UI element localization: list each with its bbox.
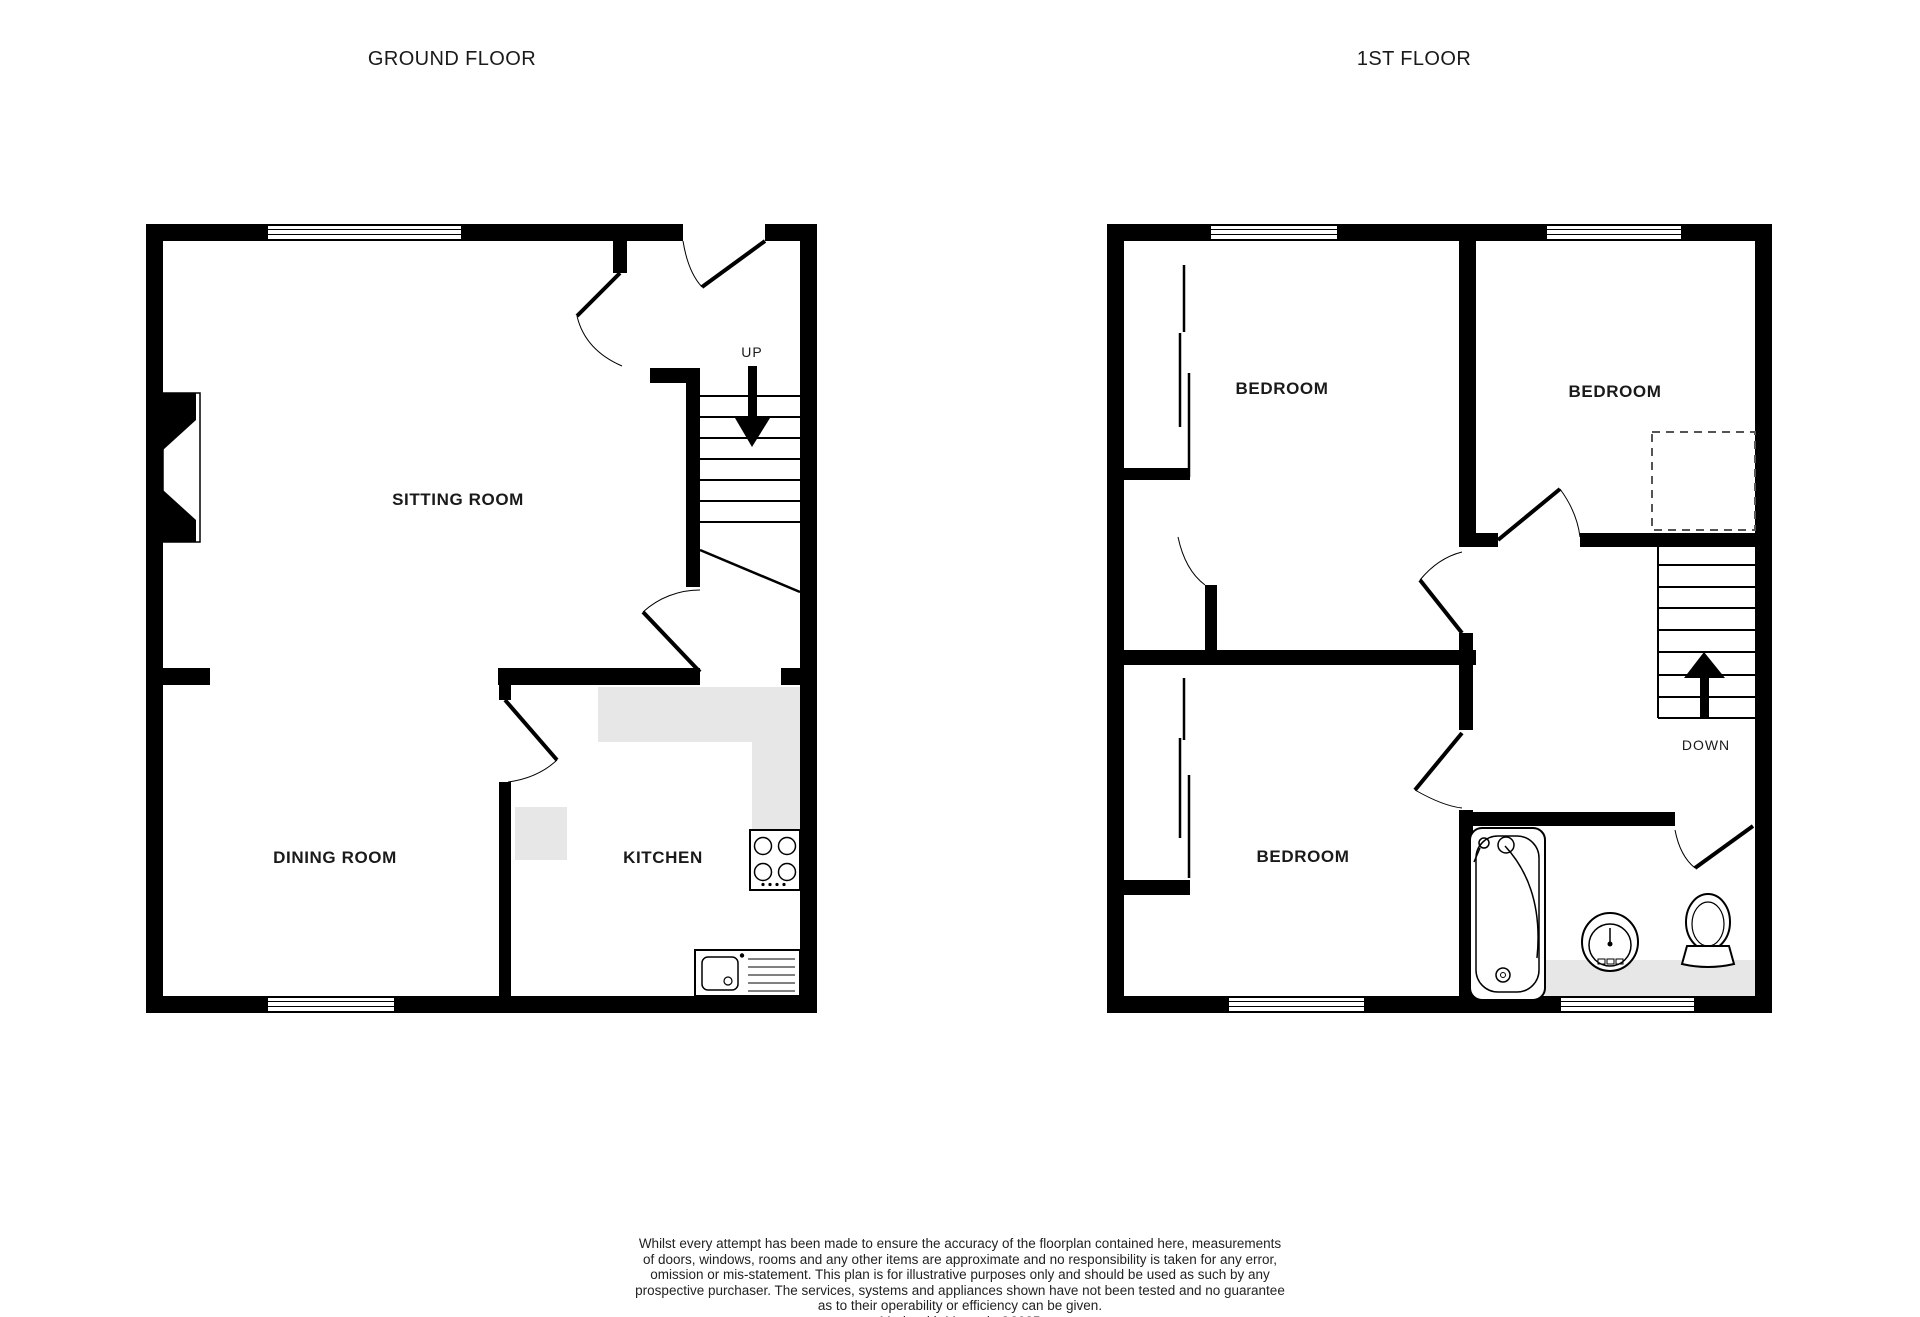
first-floor-title: 1ST FLOOR — [1357, 48, 1471, 70]
disclaimer-line: of doors, windows, rooms and any other i… — [0, 1252, 1920, 1268]
basin-icon — [1582, 913, 1638, 971]
first-floor-plan — [1107, 224, 1772, 1013]
first-window-bottom-left — [1228, 997, 1365, 1012]
stairs-up-label: UP — [741, 344, 762, 360]
bedroom3-label: BEDROOM — [1257, 847, 1350, 866]
sitting-room-label: SITTING ROOM — [392, 490, 524, 509]
stairs-down-arrow-icon — [1684, 652, 1725, 718]
bedroom1-door — [1420, 552, 1462, 633]
first-window-bottom-right — [1560, 997, 1695, 1012]
ground-outer-walls — [146, 224, 817, 1013]
kitchen-sink-icon — [695, 950, 800, 996]
stairs-up-arrow-icon — [735, 366, 770, 447]
sitting-room-door — [577, 273, 622, 366]
first-window-top-right — [1546, 225, 1682, 240]
hob-icon — [750, 830, 800, 890]
bedroom2-door — [1498, 489, 1580, 540]
wardrobe-icon — [1652, 432, 1755, 530]
fireplace-icon — [163, 393, 200, 542]
ground-window-top — [267, 225, 462, 240]
disclaimer: Whilst every attempt has been made to en… — [0, 1236, 1920, 1317]
disclaimer-line: Whilst every attempt has been made to en… — [0, 1236, 1920, 1252]
front-door — [683, 241, 765, 287]
disclaimer-line: prospective purchaser. The services, sys… — [0, 1283, 1920, 1299]
ground-floor-title: GROUND FLOOR — [368, 48, 536, 70]
kitchen-label: KITCHEN — [623, 848, 703, 867]
kitchen-hall-door — [643, 590, 700, 672]
ground-floor-plan — [146, 224, 817, 1013]
floorplan-canvas: GROUND FLOOR 1ST FLOOR SITTING ROOM DINI… — [0, 0, 1920, 1317]
bath-icon — [1470, 828, 1545, 1000]
bathroom-door — [1675, 826, 1753, 868]
closet-door-arc — [1178, 537, 1205, 585]
first-window-top-left — [1210, 225, 1338, 240]
toilet-icon — [1682, 894, 1734, 967]
ground-window-bottom — [267, 997, 395, 1012]
stairs-down-label: DOWN — [1682, 737, 1730, 753]
bedroom2-label: BEDROOM — [1569, 382, 1662, 401]
ground-internal-walls — [146, 241, 817, 996]
floorplan-page: GROUND FLOOR 1ST FLOOR SITTING ROOM DINI… — [0, 0, 1920, 1317]
disclaimer-line: omission or mis-statement. This plan is … — [0, 1267, 1920, 1283]
bedroom1-label: BEDROOM — [1236, 379, 1329, 398]
kitchen-dining-door — [505, 700, 557, 782]
bedroom3-door — [1415, 733, 1462, 808]
dining-room-label: DINING ROOM — [273, 848, 397, 867]
disclaimer-line: as to their operability or efficiency ca… — [0, 1298, 1920, 1314]
chimney-lines — [1180, 265, 1189, 878]
